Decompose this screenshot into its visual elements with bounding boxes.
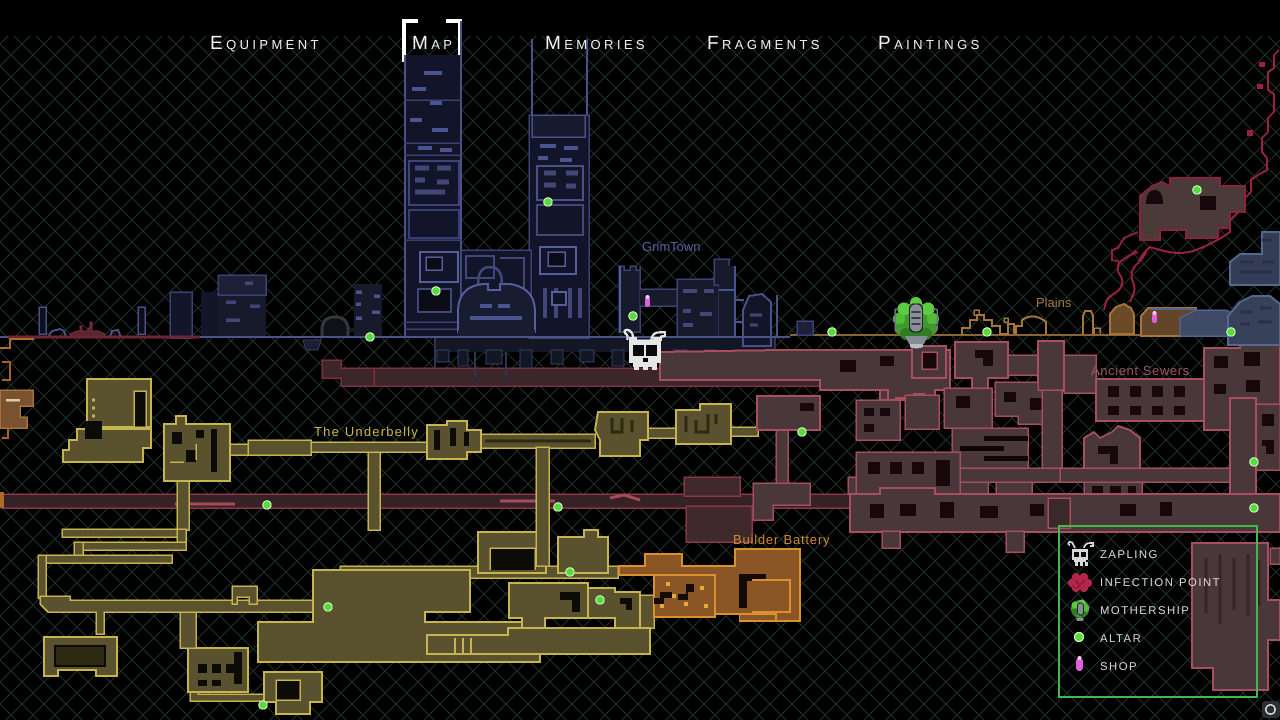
svg-text:ZAPLING: ZAPLING [1100, 549, 1159, 561]
svg-text:Memories: Memories [545, 33, 648, 54]
svg-text:INFECTION POINT: INFECTION POINT [1100, 577, 1221, 589]
svg-text:Ancient Sewers: Ancient Sewers [1091, 363, 1190, 378]
svg-text:GrimTown: GrimTown [642, 239, 701, 254]
svg-text:Builder Battery: Builder Battery [733, 532, 830, 547]
svg-text:The Underbelly: The Underbelly [314, 424, 419, 439]
svg-text:Plains: Plains [1036, 295, 1072, 310]
svg-text:ALTAR: ALTAR [1100, 633, 1142, 645]
svg-text:MOTHERSHIP: MOTHERSHIP [1100, 605, 1190, 617]
svg-text:Equipment: Equipment [210, 33, 322, 54]
svg-text:Map: Map [412, 33, 455, 54]
svg-text:Fragments: Fragments [707, 33, 823, 54]
svg-text:Paintings: Paintings [878, 33, 983, 54]
svg-text:SHOP: SHOP [1100, 661, 1138, 673]
